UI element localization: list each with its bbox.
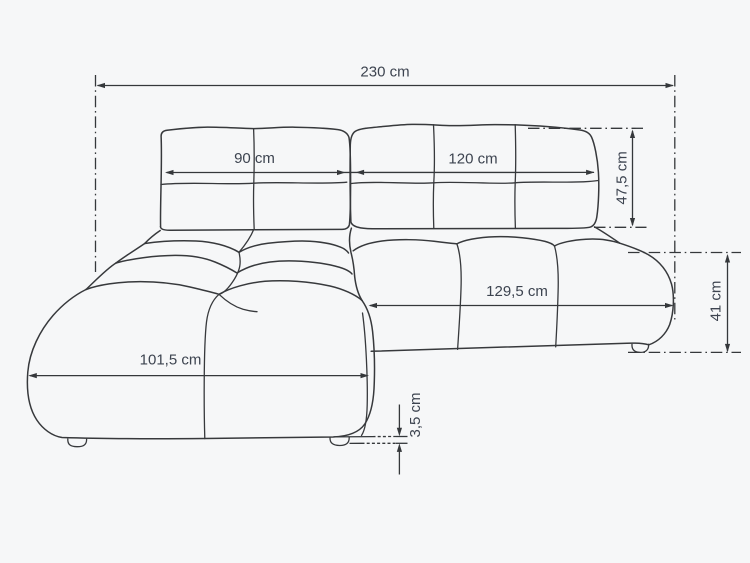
svg-text:230 cm: 230 cm [360, 64, 409, 81]
svg-text:41 cm: 41 cm [708, 281, 725, 322]
svg-text:90 cm: 90 cm [234, 150, 275, 167]
svg-text:3,5 cm: 3,5 cm [407, 392, 424, 437]
svg-text:101,5 cm: 101,5 cm [140, 352, 202, 369]
svg-text:120 cm: 120 cm [448, 151, 497, 168]
svg-text:47,5 cm: 47,5 cm [614, 151, 631, 204]
svg-text:129,5 cm: 129,5 cm [486, 283, 548, 300]
